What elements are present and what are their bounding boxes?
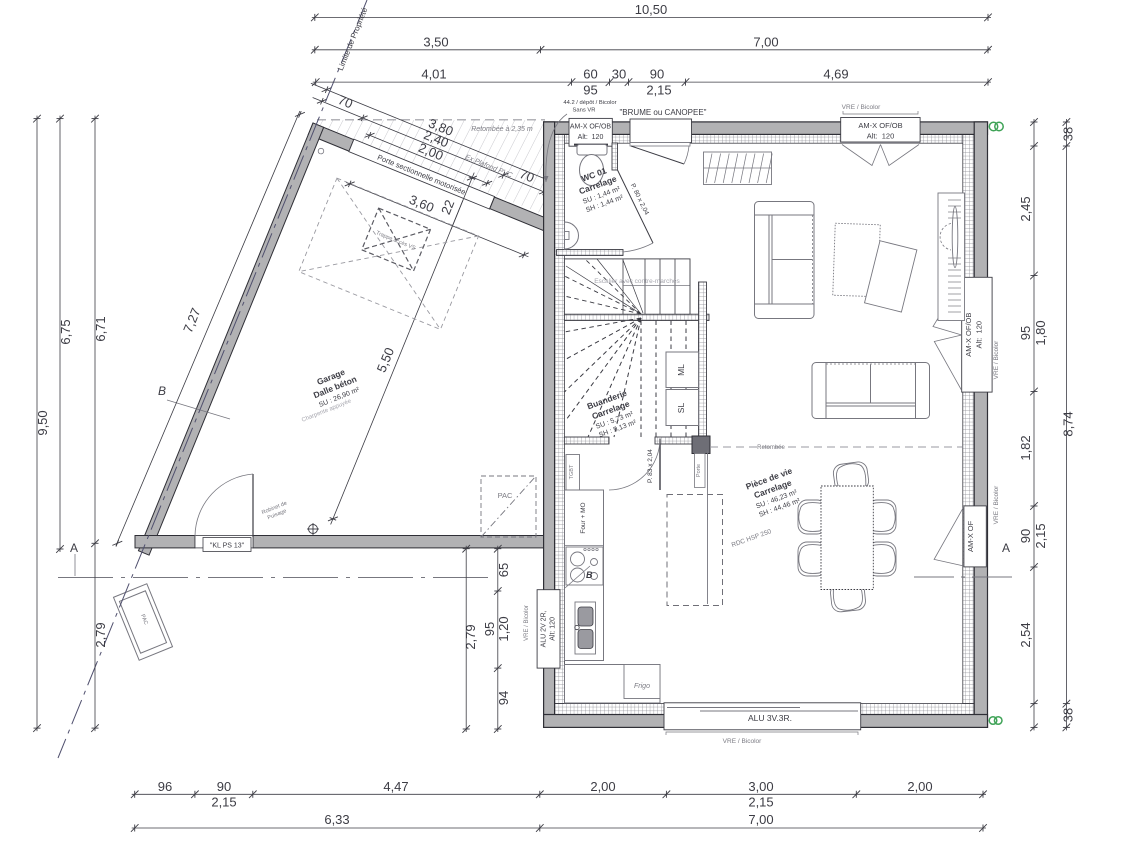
svg-text:A: A bbox=[70, 541, 78, 555]
svg-text:7,00: 7,00 bbox=[753, 34, 778, 49]
svg-text:AM-X OF: AM-X OF bbox=[966, 520, 975, 552]
svg-text:6,75: 6,75 bbox=[58, 319, 73, 344]
svg-text:A: A bbox=[1002, 541, 1010, 555]
svg-text:1,80: 1,80 bbox=[1033, 320, 1048, 345]
svg-text:ALU 3V.3R.: ALU 3V.3R. bbox=[748, 713, 792, 723]
svg-text:4,69: 4,69 bbox=[823, 67, 848, 82]
svg-text:6,71: 6,71 bbox=[93, 316, 108, 341]
svg-text:SL: SL bbox=[676, 403, 686, 414]
svg-text:1,82: 1,82 bbox=[1018, 435, 1033, 460]
svg-text:9,50: 9,50 bbox=[35, 410, 50, 435]
svg-text:38: 38 bbox=[1060, 708, 1075, 722]
svg-text:2,00: 2,00 bbox=[590, 779, 615, 794]
svg-text:Sans VR: Sans VR bbox=[573, 108, 596, 114]
svg-text:2,79: 2,79 bbox=[463, 624, 478, 649]
svg-text:95: 95 bbox=[1018, 326, 1033, 340]
svg-text:2,15: 2,15 bbox=[1033, 523, 1048, 548]
svg-text:2,45: 2,45 bbox=[1018, 196, 1033, 221]
svg-text:AM-X OF/OB: AM-X OF/OB bbox=[858, 121, 902, 130]
svg-text:ALU 2V 2R,: ALU 2V 2R, bbox=[541, 610, 548, 647]
svg-text:VRE / Bicolor: VRE / Bicolor bbox=[993, 485, 1000, 524]
svg-text:Four + MO: Four + MO bbox=[580, 502, 587, 533]
svg-text:ML: ML bbox=[676, 364, 686, 376]
svg-text:90: 90 bbox=[1018, 529, 1033, 543]
svg-text:VRE / Bicolor: VRE / Bicolor bbox=[842, 104, 881, 111]
svg-text:8,74: 8,74 bbox=[1060, 411, 1075, 436]
svg-text:3,00: 3,00 bbox=[748, 779, 773, 794]
svg-text:94: 94 bbox=[496, 691, 511, 705]
svg-text:2,54: 2,54 bbox=[1018, 622, 1033, 647]
svg-text:PAC: PAC bbox=[498, 491, 513, 500]
svg-text:1,20: 1,20 bbox=[496, 616, 511, 641]
svg-text:Alt: 120: Alt: 120 bbox=[867, 132, 895, 141]
svg-text:2,00: 2,00 bbox=[907, 779, 932, 794]
svg-text:65: 65 bbox=[496, 563, 511, 577]
svg-text:VRE / Bicolor: VRE / Bicolor bbox=[524, 605, 530, 641]
svg-text:AM-X OF/OB: AM-X OF/OB bbox=[570, 124, 612, 131]
svg-text:10,50: 10,50 bbox=[635, 2, 668, 17]
svg-text:Alt: 120: Alt: 120 bbox=[550, 617, 557, 641]
svg-text:"KL PS 13": "KL PS 13" bbox=[210, 543, 245, 550]
svg-text:B: B bbox=[158, 384, 166, 398]
svg-text:7,00: 7,00 bbox=[748, 812, 773, 827]
svg-text:2,15: 2,15 bbox=[646, 83, 671, 98]
svg-text:B: B bbox=[586, 570, 593, 580]
svg-text:P. 83 x 2,04: P. 83 x 2,04 bbox=[647, 449, 654, 483]
svg-text:"BRUME ou CANOPEE": "BRUME ou CANOPEE" bbox=[619, 108, 706, 117]
svg-text:4,47: 4,47 bbox=[383, 779, 408, 794]
svg-text:90: 90 bbox=[650, 67, 664, 82]
svg-text:90: 90 bbox=[217, 779, 231, 794]
svg-text:6,33: 6,33 bbox=[324, 812, 349, 827]
svg-text:AM-X OF/OB: AM-X OF/OB bbox=[964, 313, 973, 357]
svg-text:Escalier avec contre-marches: Escalier avec contre-marches bbox=[594, 278, 680, 285]
svg-text:44.2 / dépôt / Bicolor: 44.2 / dépôt / Bicolor bbox=[563, 100, 616, 106]
svg-text:2,15: 2,15 bbox=[211, 795, 236, 810]
svg-text:Retombée à 2,35 m: Retombée à 2,35 m bbox=[471, 126, 533, 133]
svg-text:30: 30 bbox=[612, 67, 626, 82]
svg-text:Alt: 120: Alt: 120 bbox=[975, 321, 984, 349]
svg-text:Frigo: Frigo bbox=[634, 683, 650, 690]
svg-text:2,79: 2,79 bbox=[93, 622, 108, 647]
svg-text:2,15: 2,15 bbox=[748, 795, 773, 810]
svg-text:Alt: 120: Alt: 120 bbox=[578, 134, 604, 141]
svg-text:Porte: Porte bbox=[696, 464, 702, 477]
svg-text:38: 38 bbox=[1060, 127, 1075, 141]
svg-text:95: 95 bbox=[583, 83, 597, 98]
svg-text:Retombée: Retombée bbox=[757, 445, 785, 451]
svg-text:95: 95 bbox=[482, 622, 497, 636]
svg-text:4,01: 4,01 bbox=[421, 67, 446, 82]
svg-text:60: 60 bbox=[583, 67, 597, 82]
svg-text:VRE / Bicolor: VRE / Bicolor bbox=[993, 340, 1000, 379]
svg-text:96: 96 bbox=[158, 779, 172, 794]
svg-text:VRE / Bicolor: VRE / Bicolor bbox=[723, 738, 762, 745]
svg-text:TGBT: TGBT bbox=[569, 464, 575, 479]
svg-text:3,50: 3,50 bbox=[423, 34, 448, 49]
